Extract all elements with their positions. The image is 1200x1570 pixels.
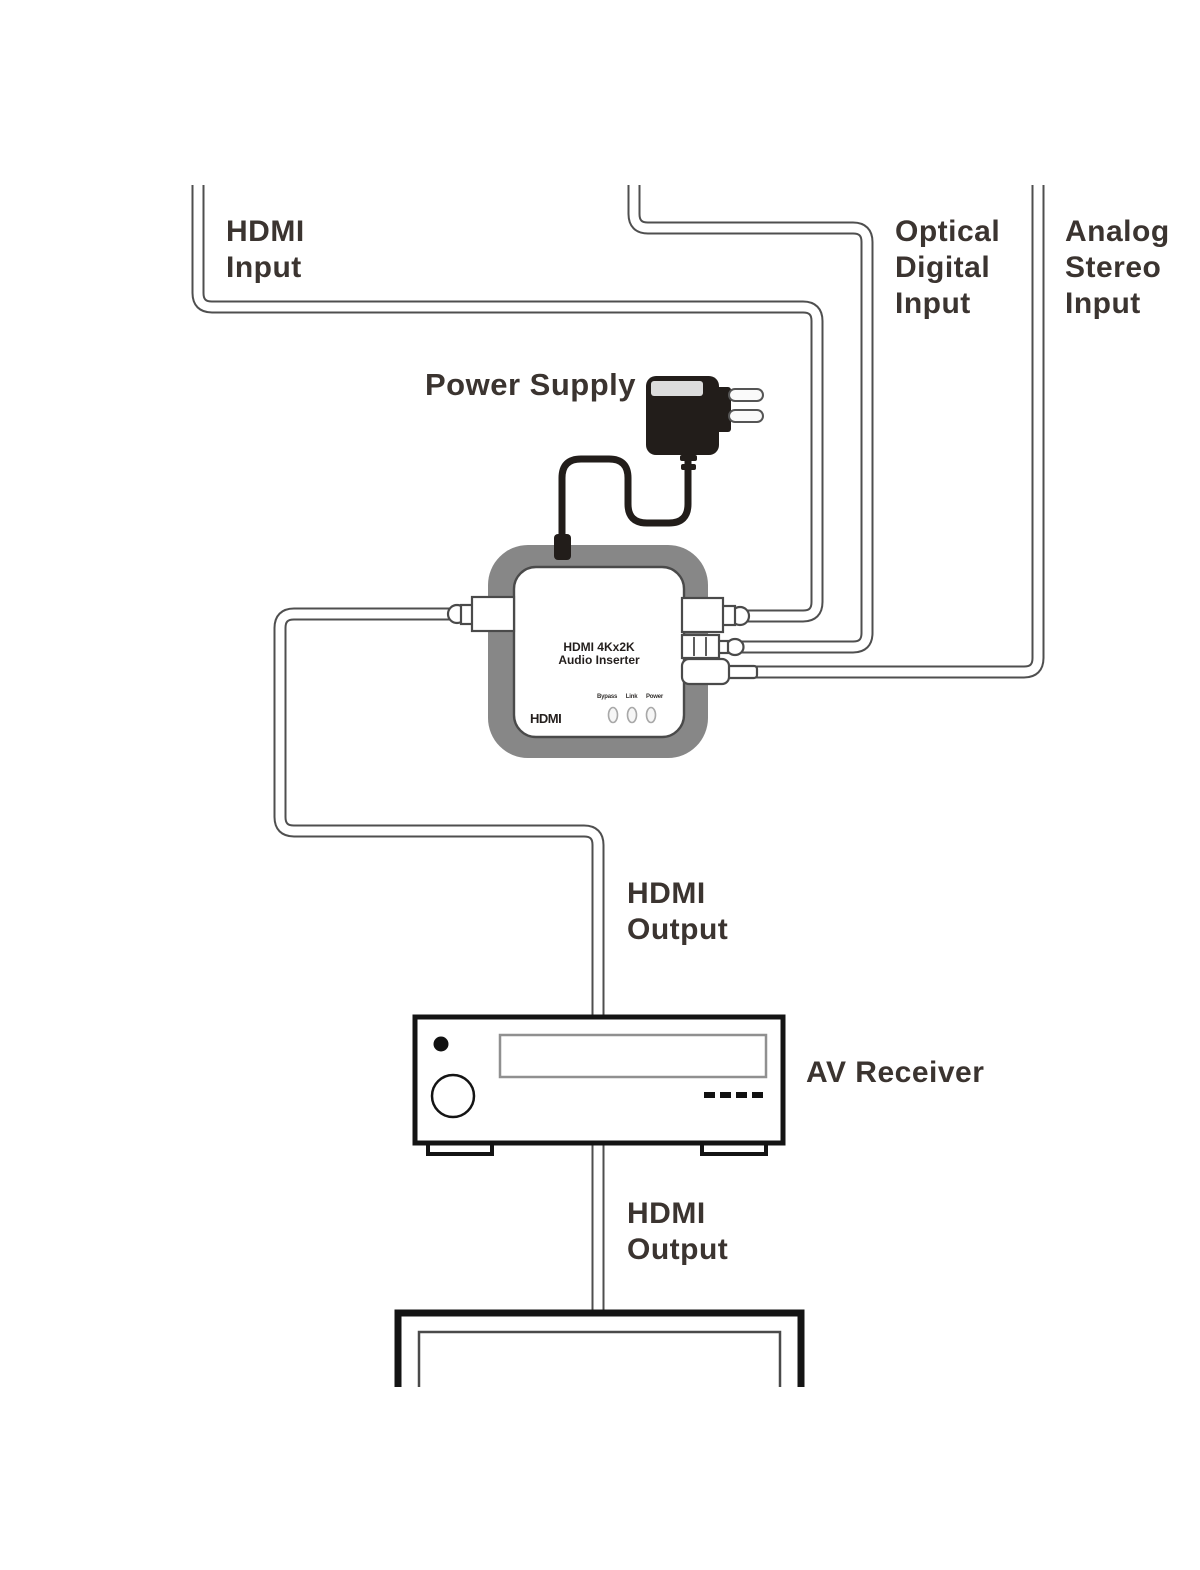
stereo-jack-plug-icon (682, 659, 757, 684)
hdmi-input-label: HDMI Input (226, 214, 305, 286)
connection-diagram: HDMI Input Optical Digital Input Analog … (0, 0, 1200, 1570)
led-label-bypass: Bypass (597, 694, 617, 700)
power-adapter-icon (646, 376, 763, 455)
receiver-power-led (434, 1037, 449, 1052)
device-title: HDMI 4Kx2K Audio Inserter (514, 641, 684, 667)
hdmi-output-label-receiver: HDMI Output (627, 876, 728, 948)
led-label-power: Power (646, 694, 663, 700)
av-receiver-label: AV Receiver (806, 1055, 984, 1091)
led-indicators (609, 708, 656, 723)
led-labels: Bypass Link Power (597, 694, 663, 700)
analog-stereo-input-label: Analog Stereo Input (1065, 214, 1170, 322)
hdmi-output-label-tv: HDMI Output (627, 1196, 728, 1268)
optical-digital-input-label: Optical Digital Input (895, 214, 1000, 322)
optical-plug-icon (682, 635, 744, 658)
power-supply-label: Power Supply (425, 367, 636, 403)
hdmi-plug-left-icon (448, 597, 514, 631)
receiver-volume-knob (432, 1075, 474, 1117)
tv-icon (398, 1313, 801, 1463)
device-title-line2: Audio Inserter (514, 654, 684, 667)
av-receiver-icon (415, 1017, 783, 1154)
led-label-link: Link (626, 694, 638, 700)
power-cord (554, 446, 697, 560)
hdmi-logo: HDMI (530, 711, 561, 726)
hdmi-plug-right-icon (682, 598, 749, 632)
receiver-display (500, 1035, 766, 1077)
diagram-artwork (0, 0, 1200, 1570)
